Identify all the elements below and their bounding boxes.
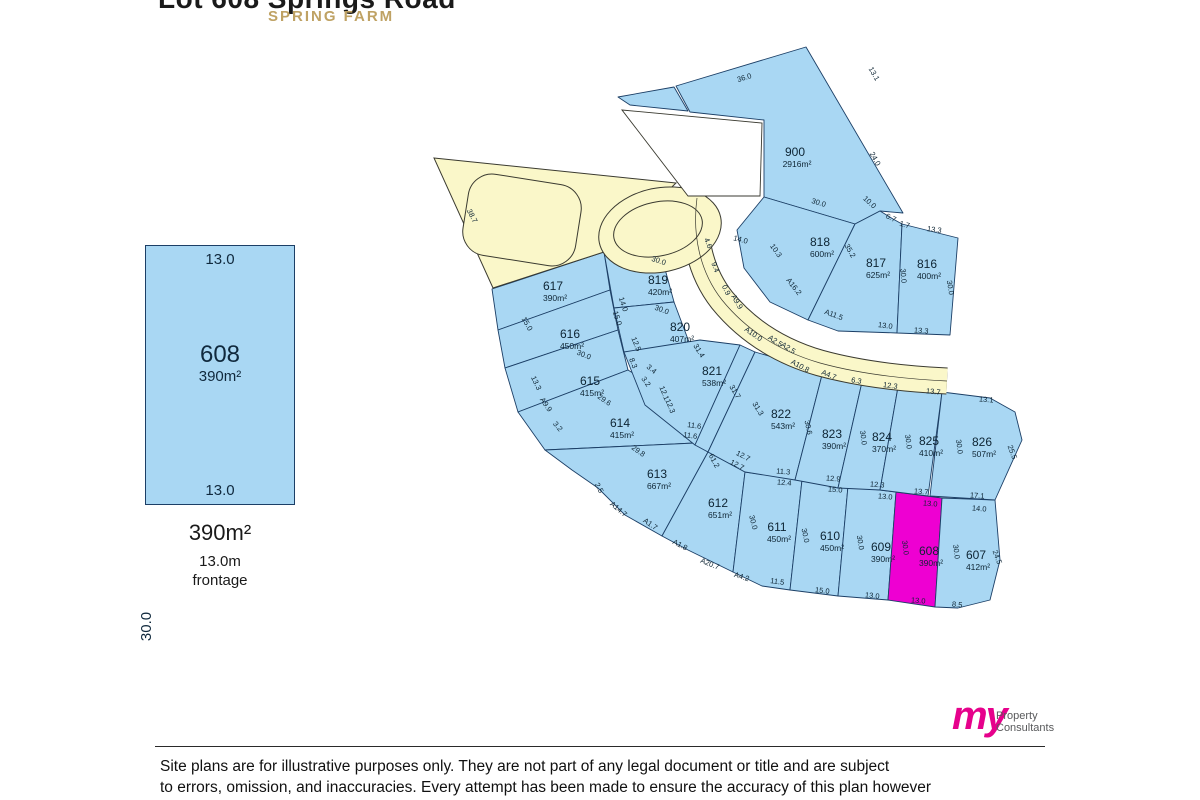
- lot-614-label: 614: [610, 416, 630, 430]
- lot-607-label: 607: [966, 548, 986, 562]
- inset-lot-number: 608: [146, 341, 294, 369]
- lot-610-area: 450m²: [820, 543, 844, 553]
- inset-lot-area: 390m²: [146, 368, 294, 385]
- summary-area: 390m²: [145, 520, 295, 546]
- lot-822-label: 822: [771, 407, 791, 421]
- lot-818-label: 818: [810, 235, 830, 249]
- lot-825-area: 410m²: [919, 448, 943, 458]
- lot-614-area: 415m²: [610, 430, 634, 440]
- lot-613-label: 613: [647, 467, 667, 481]
- dimension-label: 13.3: [914, 325, 929, 335]
- dimension-label: 12.9: [826, 473, 841, 483]
- lot-612-label: 612: [708, 496, 728, 510]
- lot-609-area: 390m²: [871, 554, 895, 564]
- lot-609-label: 609: [871, 540, 891, 554]
- lot-821-area: 538m²: [702, 378, 726, 388]
- dimension-label: 13.7: [926, 386, 941, 396]
- dimension-label: 15.0: [815, 585, 831, 596]
- dimension-label: 11.3: [776, 466, 791, 476]
- dimension-label: 17.1: [970, 490, 985, 500]
- lot-900-area: 2916m²: [783, 159, 812, 169]
- lot-summary: 390m² 13.0m frontage: [145, 520, 295, 590]
- lot-611-label: 611: [767, 520, 786, 534]
- dimension-label: 12.4: [777, 477, 792, 487]
- dimension-label: 6.3: [851, 375, 863, 386]
- dimension-label: 13.1: [867, 65, 882, 82]
- lot-819-area: 420m²: [648, 287, 672, 297]
- dimension-label: 13.0: [923, 498, 938, 508]
- inset-dim-left: 30.0: [138, 612, 155, 641]
- lot-816-area: 400m²: [917, 271, 941, 281]
- inset-dim-top: 13.0: [146, 251, 294, 268]
- lot-610-label: 610: [820, 529, 840, 543]
- logo-company-name: Property Consultants: [996, 710, 1054, 734]
- dimension-label: 14.0: [972, 503, 987, 513]
- lot-822-area: 543m²: [771, 421, 795, 431]
- lot-826-label: 826: [972, 435, 992, 449]
- dimension-label: 8.5: [952, 600, 963, 610]
- lot-615-label: 615: [580, 374, 600, 388]
- brand-logo: my Property Consultants: [952, 700, 1082, 742]
- footer-divider: [155, 746, 1045, 747]
- lot-sliver-polygon: [618, 87, 688, 111]
- lot-613-area: 667m²: [647, 481, 671, 491]
- disclaimer-text: Site plans are for illustrative purposes…: [160, 756, 1060, 798]
- lot-823-label: 823: [822, 427, 842, 441]
- lot-824-label: 824: [872, 430, 892, 444]
- summary-frontage-label: frontage: [192, 572, 247, 589]
- lot-617-label: 617: [543, 279, 563, 293]
- lot-817-label: 817: [866, 256, 886, 270]
- dimension-label: 12.3: [870, 479, 885, 489]
- dimension-label: 13.1: [979, 394, 994, 404]
- lot-612-area: 651m²: [708, 510, 732, 520]
- lot-819-label: 819: [648, 273, 668, 287]
- lot-821-label: 821: [702, 364, 722, 378]
- summary-frontage-value: 13.0m: [199, 553, 241, 570]
- lot-608-label: 608: [919, 544, 939, 558]
- lot-818-area: 600m²: [810, 249, 834, 259]
- page: Lot 608 Springs Road SPRING FARM 9002916…: [0, 0, 1200, 800]
- dimension-label: 13.0: [878, 491, 893, 501]
- lot-823-area: 390m²: [822, 441, 846, 451]
- lot-616-label: 616: [560, 327, 580, 341]
- lot-817-area: 625m²: [866, 270, 890, 280]
- lot-824-area: 370m²: [872, 444, 896, 454]
- lot-607-area: 412m²: [966, 562, 990, 572]
- inset-dim-bottom: 13.0: [146, 482, 294, 499]
- dimension-label: 13.0: [865, 590, 880, 600]
- lot-608-area: 390m²: [919, 558, 943, 568]
- lot-820-label: 820: [670, 320, 690, 334]
- dimension-label: 30.0: [898, 268, 908, 283]
- lot-825-label: 825: [919, 434, 939, 448]
- dimension-label: 13.7: [914, 486, 929, 496]
- lot-inset-diagram: 13.0 30.0 608 390m² 13.0: [145, 245, 295, 505]
- lot-617-area: 390m²: [543, 293, 567, 303]
- dimension-label: 13.0: [911, 595, 926, 605]
- lot-820-area: 407m²: [670, 334, 694, 344]
- lot-900-label: 900: [785, 145, 805, 159]
- lot-826-area: 507m²: [972, 449, 996, 459]
- lot-816-label: 816: [917, 257, 937, 271]
- dimension-label: 15.0: [828, 484, 843, 494]
- lot-611-area: 450m²: [767, 534, 791, 544]
